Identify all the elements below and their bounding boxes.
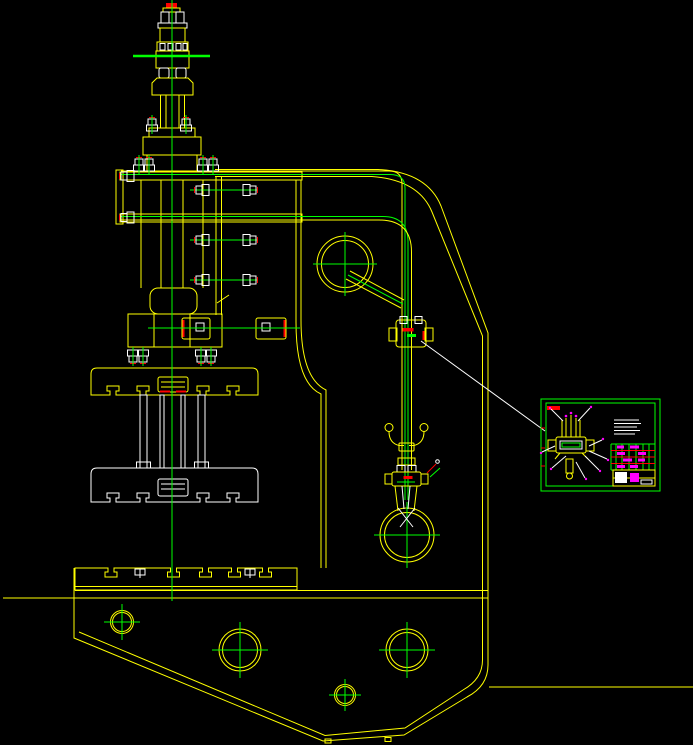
cad-canvas[interactable]: [0, 0, 693, 745]
cad-drawing-area[interactable]: [0, 0, 693, 745]
background: [0, 0, 693, 745]
